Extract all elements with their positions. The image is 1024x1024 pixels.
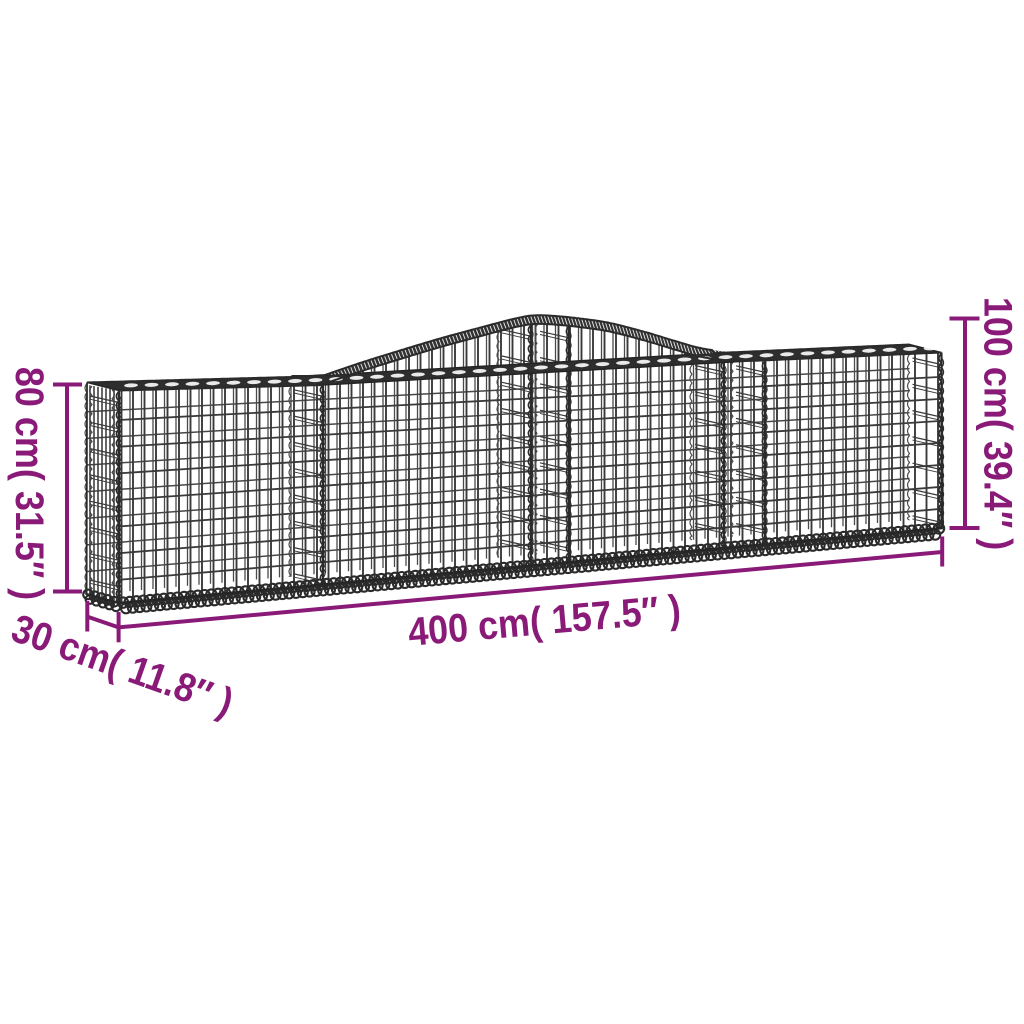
svg-text:100 cm( 39.4″ ): 100 cm( 39.4″ ) xyxy=(975,297,1019,550)
svg-text:80 cm( 31.5″ ): 80 cm( 31.5″ ) xyxy=(7,367,51,600)
